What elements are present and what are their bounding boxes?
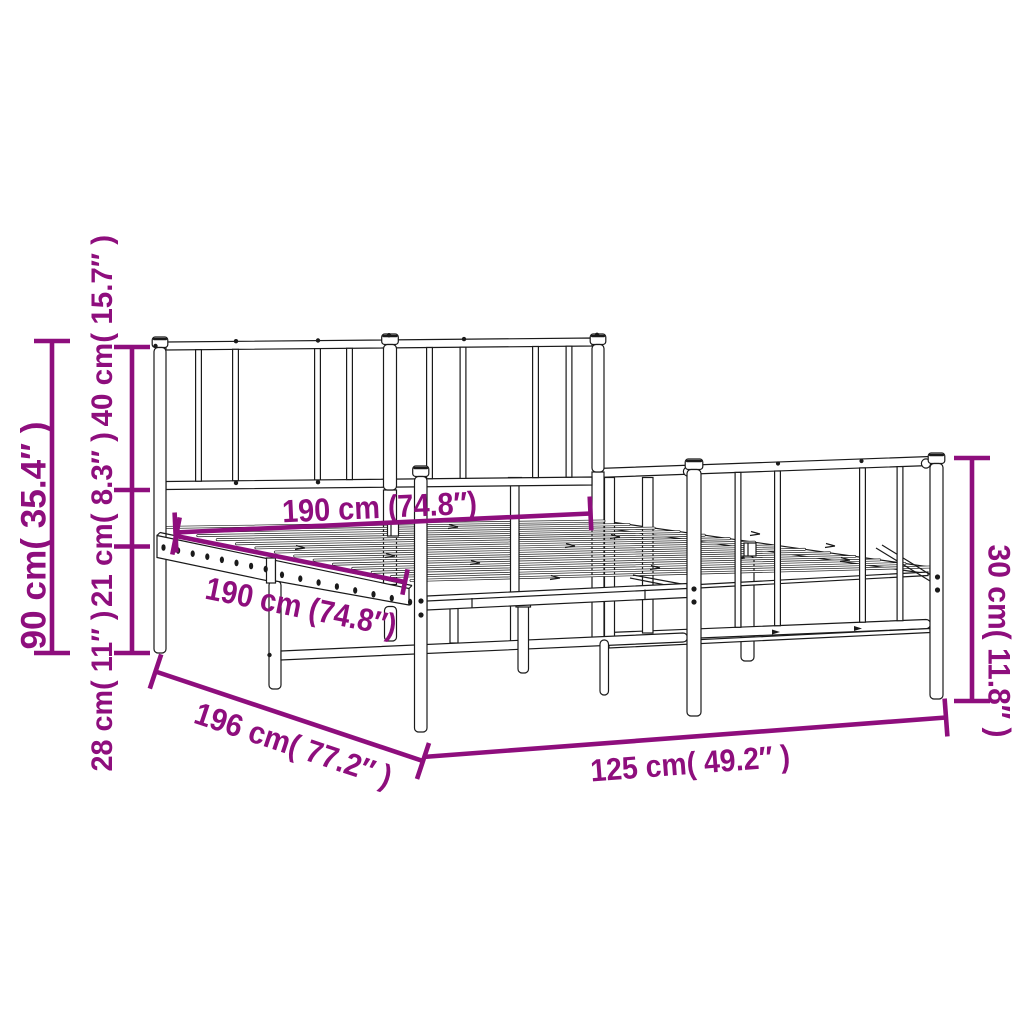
svg-text:40 cm( 15.7″ ): 40 cm( 15.7″ ) [86, 235, 119, 427]
svg-text:21 cm( 8.3″ ): 21 cm( 8.3″ ) [86, 432, 119, 607]
svg-text:90 cm( 35.4″ ): 90 cm( 35.4″ ) [15, 422, 54, 650]
svg-text:28 cm( 11″ ): 28 cm( 11″ ) [86, 611, 119, 772]
svg-text:30 cm( 11.8″ ): 30 cm( 11.8″ ) [982, 545, 1018, 738]
